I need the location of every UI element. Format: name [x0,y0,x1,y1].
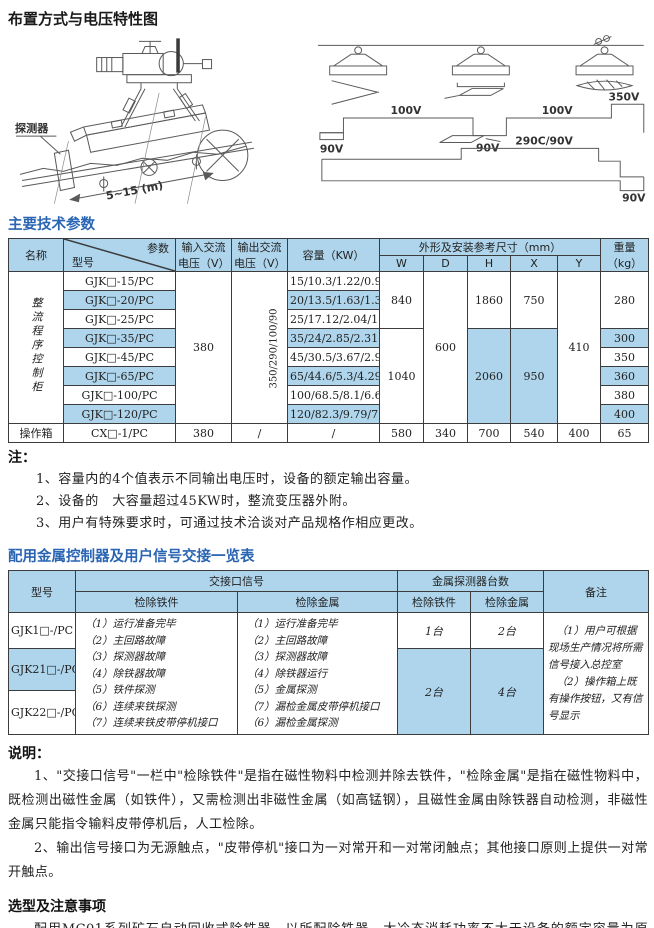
weight-cell: 65 [601,424,649,443]
col-header-y: Y [558,256,601,272]
col-header-signal-metal: 检除金属 [238,592,398,613]
d-cell: 340 [424,424,468,443]
weight-cell: 380 [601,386,649,405]
model-cell: GJK□-15/PC [64,272,176,291]
model-cell: GJK1□-/PC [9,613,76,649]
weight-cell: 300 [601,329,649,348]
col-header-d: D [424,256,468,272]
params-table: 名称 参数 型号 输入交流电压（V） 输出交流电压（V） 容量（KW） 外形及安… [8,238,649,443]
metal-signal-list: （1）运行准备完毕（2）主回路故障（3）探测器故障（4）除铁器运行（5）金属探测… [238,613,398,735]
col-header-model-param: 参数 型号 [64,239,176,272]
param-label: 参数 [147,240,169,256]
v100-right-label: 100V [542,104,574,117]
voltage-diagram: 90V 100V 90V 100V 350V 290C/90V 90V [314,31,648,205]
notes-section: 注： 1、容量内的4个值表示不同输出电压时，设备的额定输出容量。2、设备的 大容… [8,447,648,535]
vout-cell: / [232,424,288,443]
weight-cell: 360 [601,367,649,386]
count-metal-cell: 2台 [471,613,544,649]
y-cell: 410 [558,272,601,424]
table-row: GJK1□-/PC （1）运行准备完毕（2）主回路故障（3）探测器故障（4）除铁… [9,613,649,649]
model-cell: GJK□-45/PC [64,348,176,367]
col-header-vin: 输入交流电压（V） [176,239,232,272]
col-header-vout: 输出交流电压（V） [232,239,288,272]
x-cell: 540 [511,424,558,443]
model-cell: GJK□-25/PC [64,310,176,329]
vin-cell: 380 [176,424,232,443]
selection-heading: 选型及注意事项 [8,896,648,916]
explanation-section: 说明： 1、"交接口信号"一栏中"检除铁件"是指在磁性物料中检测并除去铁件，"检… [8,743,648,885]
v290-label: 290C/90V [516,134,574,147]
col-header-signal-iron: 检除铁件 [76,592,238,613]
x-cell: 750 [511,272,558,329]
selection-section: 选型及注意事项 配用MC01系列矿石自动回收式除铁器，以所配除铁器 大冷态消耗功… [8,896,648,928]
table-row: GJK□-35/PC 35/24/2.85/2.31 1040 2060 950… [9,329,649,348]
w-cell: 1040 [380,329,424,424]
iron-signal-list: （1）运行准备完毕（2）主回路故障（3）探测器故障（4）除铁器故障（5）铁件探测… [76,613,238,735]
installation-diagram: 探测器 5~15 (m) [8,31,310,207]
capacity-cell: 45/30.5/3.67/2.97 [288,348,380,367]
group-name-cell: 整流程序控制柜 [9,272,64,424]
col-header-weight: 重量（kg） [601,239,649,272]
col-header-h: H [468,256,511,272]
capacity-cell: 65/44.6/5.3/4.29 [288,367,380,386]
count-iron-cell: 1台 [398,613,471,649]
d-cell: 600 [424,272,468,424]
capacity-cell: 120/82.3/9.79/7.93 [288,405,380,424]
model-cell: GJK□-20/PC [64,291,176,310]
model-label: 型号 [72,254,94,270]
x-cell: 950 [511,329,558,424]
capacity-cell: 20/13.5/1.63/1.32 [288,291,380,310]
h-cell: 2060 [468,329,511,424]
detector-label: 探测器 [15,121,49,135]
w-cell: 580 [380,424,424,443]
col-header-capacity: 容量（KW） [288,239,380,272]
signal-table: 型号 交接口信号 金属探测器台数 备注 检除铁件 检除金属 检除铁件 检除金属 … [8,570,649,735]
col-header-count-iron: 检除铁件 [398,592,471,613]
col-header-w: W [380,256,424,272]
weight-cell: 400 [601,405,649,424]
explanation-paragraphs: 1、"交接口信号"一栏中"检除铁件"是指在磁性物料中检测并除去铁件，"检除金属"… [8,765,648,885]
model-cell: GJK□-65/PC [64,367,176,386]
table-row-operator-box: 操作箱 CX□-1/PC 380 / / 580 340 700 540 400… [9,424,649,443]
selection-paragraph: 配用MC01系列矿石自动回收式除铁器，以所配除铁器 大冷态消耗功率不大于设备的额… [8,918,648,928]
vin-cell: 380 [176,272,232,424]
count-metal-cell: 4台 [471,649,544,735]
model-cell: CX□-1/PC [64,424,176,443]
col-header-model: 型号 [9,571,76,613]
col-header-remark: 备注 [544,571,649,613]
v90-mid-label: 90V [476,141,500,154]
weight-cell: 280 [601,272,649,329]
table-row: 整流程序控制柜 GJK□-15/PC 380 350/290/100/90 15… [9,272,649,291]
y-cell: 400 [558,424,601,443]
layout-diagrams: 探测器 5~15 (m) [8,31,648,207]
section-heading-signal-table: 配用金属控制器及用户信号交接一览表 [8,545,648,566]
capacity-cell: 15/10.3/1.22/0.9 [288,272,380,291]
explanation-heading: 说明： [8,743,648,763]
group-name-cell: 操作箱 [9,424,64,443]
model-cell: GJK22□-/PC [9,691,76,735]
col-header-name: 名称 [9,239,64,272]
v90-left-label: 90V [320,142,344,155]
model-cell: GJK□-120/PC [64,405,176,424]
notes-heading: 注： [8,447,648,467]
col-header-detector-count: 金属探测器台数 [398,571,544,592]
h-cell: 1860 [468,272,511,329]
col-header-signal: 交接口信号 [76,571,398,592]
capacity-cell: 100/68.5/8.1/6.61 [288,386,380,405]
col-header-count-metal: 检除金属 [471,592,544,613]
weight-cell: 350 [601,348,649,367]
capacity-cell: / [288,424,380,443]
capacity-cell: 25/17.12/2.04/1.65 [288,310,380,329]
model-cell: GJK21□-/PC [9,649,76,691]
section-heading-params: 主要技术参数 [8,213,648,234]
vout-cell: 350/290/100/90 [232,272,288,424]
model-cell: GJK□-35/PC [64,329,176,348]
page-title: 布置方式与电压特性图 [8,8,648,29]
document-page: 布置方式与电压特性图 [0,0,654,928]
h-cell: 700 [468,424,511,443]
w-cell: 840 [380,272,424,329]
remark-list: （1）用户可根据现场生产情况将所需信号接入总控室（2）操作箱上既有操作按钮，又有… [544,613,649,735]
notes-list: 1、容量内的4个值表示不同输出电压时，设备的额定输出容量。2、设备的 大容量超过… [8,469,648,535]
distance-label: 5~15 (m) [105,179,164,203]
col-header-x: X [511,256,558,272]
capacity-cell: 35/24/2.85/2.31 [288,329,380,348]
v90-bottom-label: 90V [622,191,646,204]
count-iron-cell: 2台 [398,649,471,735]
v350-label: 350V [609,90,641,103]
model-cell: GJK□-100/PC [64,386,176,405]
v100-left-label: 100V [391,104,423,117]
col-header-dimensions: 外形及安装参考尺寸（mm） [380,239,601,256]
